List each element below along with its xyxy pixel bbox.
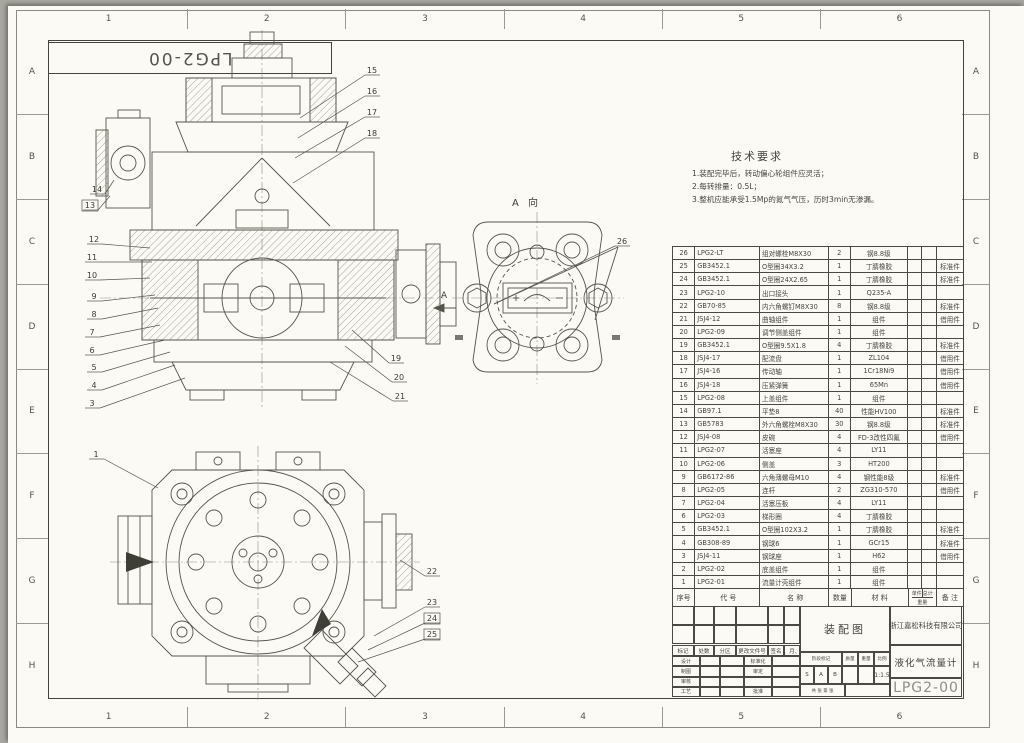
revision-empty-cell xyxy=(768,625,784,644)
zone-number: 6 xyxy=(820,707,978,727)
signature-label: 制图 xyxy=(672,666,700,676)
signature-blank xyxy=(772,656,800,666)
zone-number: 3 xyxy=(345,707,503,727)
bom-row: 4GB308-89钢球6 1GCr15 标准件 xyxy=(673,536,963,549)
a-view-label: A 向 xyxy=(512,194,541,209)
revision-empty-cell xyxy=(784,606,800,625)
signature-label: 设计 xyxy=(672,656,700,666)
weight-value xyxy=(858,666,874,684)
bom-row: 22GB70-85内六角螺钉M8X30 8钢8.8级 标准件 xyxy=(673,300,963,313)
flipped-drawing-number: LPG2-00 xyxy=(147,48,232,68)
bom-row: 19GB3452.1O型圈9.5X1.8 4丁腈橡胶 标准件 xyxy=(673,339,963,352)
bom-row: 6LPG2-03梯形圈 4丁腈橡胶 xyxy=(673,510,963,523)
rev-header: 年、月、日 xyxy=(784,645,800,656)
title-block: 标记 处数 分区 更改文件号 签名 年、月、日 装配图 阶段标记 质量 重量 比… xyxy=(672,606,962,697)
bom-row: 23LPG2-10出口接头 1Q235-A xyxy=(673,286,963,299)
zone-numbers-top: 123456 xyxy=(30,9,978,29)
bom-row: 2LPG2-02底盖组件 1组件 xyxy=(673,563,963,576)
product-name: 液化气流量计 xyxy=(890,645,962,678)
rev-header: 更改文件号 xyxy=(736,645,768,656)
sheet-note-blank xyxy=(845,684,890,697)
revision-empty-cell xyxy=(672,606,694,625)
signature-blank xyxy=(720,677,744,687)
zone-letter: F xyxy=(16,453,48,538)
bom-row: 25GB3452.1O型圈34X3.2 1丁腈橡胶 标准件 xyxy=(673,260,963,273)
stage-mark: S xyxy=(800,666,814,684)
signature-blank xyxy=(772,687,800,697)
zone-letter: C xyxy=(16,199,48,284)
signature-label xyxy=(744,677,772,687)
signature-blank xyxy=(700,677,720,687)
bom-row: 12JSJ4-08皮碗 4FD-3改性四氟 借用件 xyxy=(673,431,963,444)
zone-letter: B xyxy=(16,114,48,199)
revision-empty-cell xyxy=(768,606,784,625)
revision-empty-cell xyxy=(694,625,714,644)
bom-row: 10LPG2-06侧盖 3HT200 xyxy=(673,458,963,471)
zone-number: 1 xyxy=(30,9,187,29)
technical-requirements: 技术要求 1.装配完毕后，转动偏心轮组件应灵活；2.每转排量：0.5L；3.整机… xyxy=(692,148,967,206)
signature-label: 审核 xyxy=(672,677,700,687)
zone-letter: C xyxy=(962,199,990,284)
signature-label: 工艺 xyxy=(672,687,700,697)
signature-blank xyxy=(772,666,800,676)
revision-empty-cell xyxy=(672,625,694,644)
zone-letter: D xyxy=(16,284,48,369)
revision-empty-cell xyxy=(784,625,800,644)
revision-empty-cell xyxy=(736,625,768,644)
tech-req-title: 技术要求 xyxy=(692,148,822,164)
bom-row: 13GB5783外六角螺栓M8X30 30钢8.8级 标准件 xyxy=(673,418,963,431)
bom-row: 24GB3452.1O型圈24X2.65 1丁腈橡胶 标准件 xyxy=(673,273,963,286)
bom-row: 9GB6172-86六角薄螺母M10 4钢性能8级 标准件 xyxy=(673,471,963,484)
zone-number: 2 xyxy=(187,707,345,727)
bom-row: 20LPG2-09调节侧盖组件 1组件 xyxy=(673,326,963,339)
stage-mark: B xyxy=(828,666,842,684)
bom-header-row: 序号 代 号 名 称 数量 材 料 单件总计 重量 备 注 xyxy=(673,589,963,607)
zone-letter: A xyxy=(16,30,48,114)
stage-mark-header: 阶段标记 xyxy=(800,652,842,666)
zone-numbers-bottom: 123456 xyxy=(30,707,978,727)
bom-table: 26LPG2-LT组对螺栓M8X30 2钢8.8级 25GB3452.1O型圈3… xyxy=(672,246,963,607)
scale-value: 1:1.5 xyxy=(874,666,890,684)
signature-blank xyxy=(700,687,720,697)
zone-number: 5 xyxy=(662,707,820,727)
zone-number: 4 xyxy=(504,707,662,727)
bom-row: 15LPG2-08上盖组件 1组件 xyxy=(673,392,963,405)
zone-letter: H xyxy=(962,623,990,708)
signature-label: 标准化 xyxy=(744,656,772,666)
revision-empty-cell xyxy=(694,606,714,625)
bom-row: 17JSJ4-16传动轴 11Cr18Ni9 借用件 xyxy=(673,365,963,378)
zone-letter: E xyxy=(962,369,990,454)
zone-number: 4 xyxy=(504,9,662,29)
signature-blank xyxy=(720,687,744,697)
signature-blank xyxy=(720,656,744,666)
revision-empty-cell xyxy=(714,625,736,644)
zone-letter: H xyxy=(16,623,48,708)
zone-number: 3 xyxy=(345,9,503,29)
zone-number: 2 xyxy=(187,9,345,29)
zone-letter: D xyxy=(962,284,990,369)
signature-label: 审定 xyxy=(744,666,772,676)
rev-header: 签名 xyxy=(768,645,784,656)
drawing-type: 装配图 xyxy=(800,606,890,652)
bom-row: 16JSJ4-18压紧弹簧 165Mn 借用件 xyxy=(673,379,963,392)
zone-number: 5 xyxy=(662,9,820,29)
bom-row: 18JSJ4-17配流盘 1ZL104 借用件 xyxy=(673,352,963,365)
stage-mark: A xyxy=(814,666,828,684)
signature-blank xyxy=(720,666,744,676)
bom-row: 1LPG2-01流量计壳组件 1组件 xyxy=(673,576,963,589)
signature-blank xyxy=(772,677,800,687)
revision-empty-cell xyxy=(714,606,736,625)
signature-label: 批准 xyxy=(744,687,772,697)
bom-row: 11LPG2-07活塞座 4LY11 xyxy=(673,444,963,457)
zone-number: 1 xyxy=(30,707,187,727)
tech-req-line: 2.每转排量：0.5L； xyxy=(692,180,967,193)
zone-letter: G xyxy=(16,538,48,623)
bom-row: 5GB3452.1O型圈102X3.2 1丁腈橡胶 标准件 xyxy=(673,523,963,536)
zone-letters-left: ABCDEFGH xyxy=(16,30,48,708)
zone-letter: F xyxy=(962,453,990,538)
revision-empty-cell xyxy=(736,606,768,625)
rev-header: 分区 xyxy=(714,645,736,656)
scanned-drawing-sheet: 123456 123456 ABCDEFGH ABCDEFGH LPG2-00 xyxy=(0,0,1024,743)
zone-number: 6 xyxy=(820,9,978,29)
bom-row: 26LPG2-LT组对螺栓M8X30 2钢8.8级 xyxy=(673,247,963,260)
zone-letter: G xyxy=(962,538,990,623)
scale-header: 比例 xyxy=(874,652,890,666)
zone-letter: A xyxy=(962,30,990,114)
tech-req-line: 3.整机应能承受1.5Mp的氮气气压，历时3min无渗漏。 xyxy=(692,193,967,206)
bom-row: 8LPG2-05连杆 2ZG310-570 借用件 xyxy=(673,484,963,497)
signature-blank xyxy=(700,656,720,666)
mass-value xyxy=(842,666,858,684)
sheet-count-note: 共 张 第 张 xyxy=(800,684,845,697)
bom-row: 7LPG2-04活塞压板 4LY11 xyxy=(673,497,963,510)
bom-row: 14GB97.1平垫8 40性能HV100 标准件 xyxy=(673,405,963,418)
weight-header: 重量 xyxy=(858,652,874,666)
bom-row: 21JSJ4-12曲轴组件 1组件 借用件 xyxy=(673,313,963,326)
flipped-drawing-number-box: LPG2-00 xyxy=(48,42,332,74)
rev-header: 标记 xyxy=(672,645,694,656)
company-name: 浙江嘉松科技有限公司 xyxy=(890,606,962,645)
rev-header: 处数 xyxy=(694,645,714,656)
bom-row: 3JSJ4-11钢球座 1H62 借用件 xyxy=(673,550,963,563)
bom-weight-header: 单件总计 重量 xyxy=(909,589,937,607)
tech-req-line: 1.装配完毕后，转动偏心轮组件应灵活； xyxy=(692,167,967,180)
zone-letter: E xyxy=(16,369,48,454)
drawing-number: LPG2-00 xyxy=(890,678,962,697)
zone-letters-right: ABCDEFGH xyxy=(962,30,990,708)
signature-blank xyxy=(700,666,720,676)
mass-header: 质量 xyxy=(842,652,858,666)
